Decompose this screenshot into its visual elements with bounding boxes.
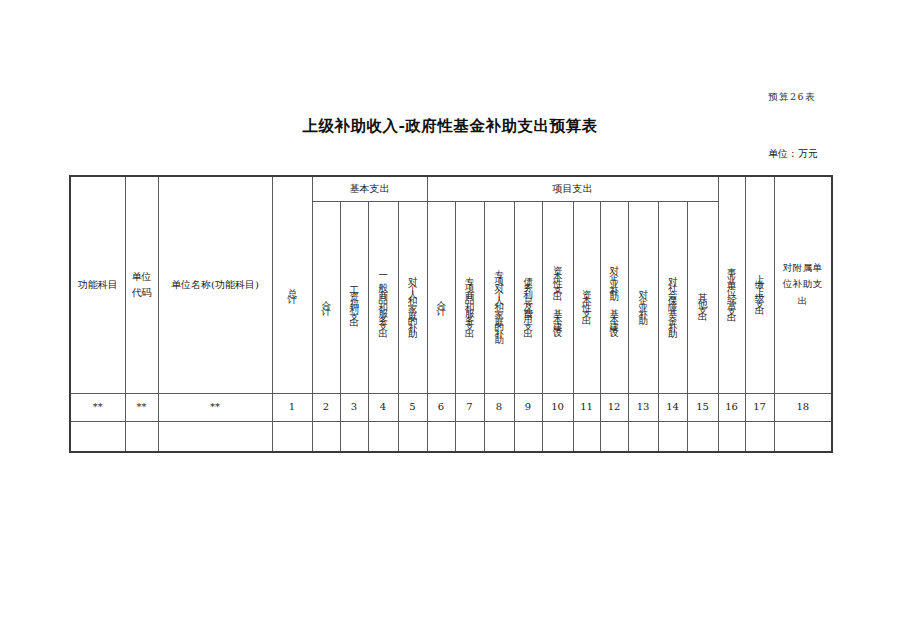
code-cell: 11 [573,393,600,421]
code-cell: 7 [455,393,484,421]
code-cell: 6 [427,393,455,421]
budget-table: 功能科目 单位代码 单位名称(功能科目) 总计 基本支出 项目支出 事业单位经营… [69,175,833,453]
header-project-special-goods-services: 专项商品和服务支出 [455,201,484,393]
code-cell: 12 [600,393,628,421]
header-basic-wages-welfare: 工资福利支出 [340,201,368,393]
header-basic-subtotal: 合计 [312,201,340,393]
header-affiliated-subsidy-label: 对附属单位补助支出 [783,260,823,310]
code-cell: 17 [745,393,774,421]
group-project-expenditure: 项目支出 [427,176,718,201]
code-cell: 14 [658,393,687,421]
header-row-top: 功能科目 单位代码 单位名称(功能科目) 总计 基本支出 项目支出 事业单位经营… [70,176,832,201]
header-unit-code-label: 单位代码 [130,269,154,300]
code-cell: 13 [628,393,658,421]
code-cell: 9 [514,393,542,421]
vertical-header-label: 上缴上级支出 [754,266,764,305]
empty-cell [125,421,158,452]
empty-cell [455,421,484,452]
code-cell: 15 [687,393,718,421]
empty-cell [484,421,514,452]
empty-cell [658,421,687,452]
empty-cell [368,421,398,452]
empty-cell [70,421,125,452]
data-row-empty [70,421,832,452]
code-cell: 10 [542,393,573,421]
header-grand-total: 总计 [272,176,312,393]
empty-cell [427,421,455,452]
empty-cell [340,421,368,452]
empty-cell [687,421,718,452]
vertical-header-label: 工资福利支出 [349,278,359,317]
header-project-other: 其他支出 [687,201,718,393]
vertical-header-label: 资本性支出(基本建设) [552,258,562,337]
header-project-special-individual-family: 专项对个人和家庭的补助 [484,201,514,393]
document-page: 预算26表 上级补助收入-政府性基金补助支出预算表 单位：万元 功能科目 单位代… [0,0,900,636]
empty-cell [514,421,542,452]
vertical-header-label: 对企业补助 [638,282,648,315]
vertical-header-label: 一般商品和服务支出 [378,269,388,328]
page-title: 上级补助收入-政府性基金补助支出预算表 [0,116,900,137]
header-unit-name: 单位名称(功能科目) [158,176,272,393]
empty-cell [628,421,658,452]
header-project-enterprise-subsidy-construction: 对企业补助(基本建设) [600,201,628,393]
header-project-subtotal: 合计 [427,201,455,393]
empty-cell [542,421,573,452]
code-cell: 2 [312,393,340,421]
vertical-header-label: 专项商品和服务支出 [464,269,474,328]
group-basic-expenditure: 基本支出 [312,176,427,201]
code-cell: 5 [398,393,427,421]
code-cell: ** [125,393,158,421]
empty-cell [774,421,832,452]
header-project-capital-basic-construction: 资本性支出(基本建设) [542,201,573,393]
header-basic-general-goods-services: 一般商品和服务支出 [368,201,398,393]
column-code-row: ** ** ** 1 2 3 4 5 6 7 8 9 10 11 12 13 1… [70,393,832,421]
vertical-header-label: 债务利息及费用支出 [523,269,533,328]
vertical-header-label: 对企业补助(基本建设) [609,258,619,337]
vertical-header-label: 对社会保障基金补助 [667,269,677,328]
code-cell: 18 [774,393,832,421]
code-cell: 16 [718,393,745,421]
code-cell: 4 [368,393,398,421]
empty-cell [158,421,272,452]
header-function-category: 功能科目 [70,176,125,393]
form-number-label: 预算26表 [768,91,816,104]
code-cell: 3 [340,393,368,421]
empty-cell [745,421,774,452]
code-cell: ** [70,393,125,421]
vertical-header-label: 合计 [436,293,446,306]
header-project-debt-interest-fees: 债务利息及费用支出 [514,201,542,393]
code-cell: 8 [484,393,514,421]
header-business-operation: 事业单位经营支出 [718,176,745,393]
code-cell: ** [158,393,272,421]
code-cell: 1 [272,393,312,421]
vertical-header-label: 资本性支出 [581,282,591,315]
header-project-social-security-fund-subsidy: 对社会保障基金补助 [658,201,687,393]
empty-cell [573,421,600,452]
header-remit-superior: 上缴上级支出 [745,176,774,393]
header-basic-individual-family: 对个人和家庭的补助 [398,201,427,393]
empty-cell [600,421,628,452]
header-project-capital: 资本性支出 [573,201,600,393]
empty-cell [718,421,745,452]
vertical-header-label: 合计 [321,293,331,306]
header-project-enterprise-subsidy: 对企业补助 [628,201,658,393]
vertical-header-label: 对个人和家庭的补助 [407,269,417,328]
vertical-header-label: 其他支出 [697,285,707,311]
empty-cell [312,421,340,452]
vertical-header-label: 总计 [287,281,297,294]
empty-cell [272,421,312,452]
empty-cell [398,421,427,452]
vertical-header-label: 专项对个人和家庭的补助 [494,262,504,334]
header-unit-code: 单位代码 [125,176,158,393]
header-affiliated-subsidy: 对附属单位补助支出 [774,176,832,393]
unit-label: 单位：万元 [768,147,818,161]
vertical-header-label: 事业单位经营支出 [726,260,736,312]
